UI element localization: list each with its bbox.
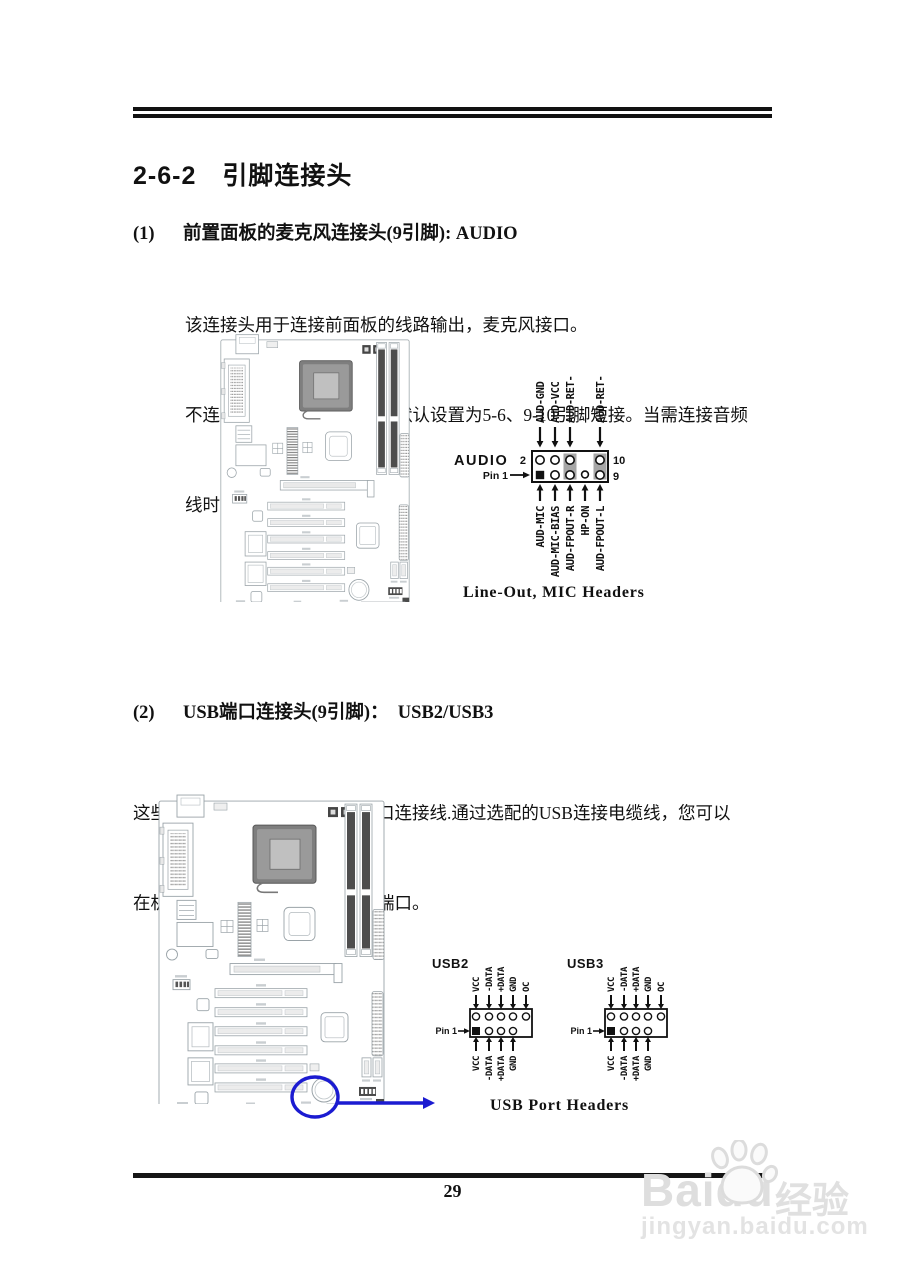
usb3-pin1-label: Pin 1 xyxy=(570,1026,592,1036)
motherboard-diagram-1 xyxy=(220,326,410,602)
usb2-pin1-square xyxy=(472,1027,480,1035)
manual-page: 2-6-2 引脚连接头 (1)前置面板的麦克风连接头(9引脚): AUDIO 该… xyxy=(0,0,905,1280)
header-rule-top xyxy=(133,107,772,111)
usb3-bottom-arrows xyxy=(611,1042,648,1051)
pin-number-2: 2 xyxy=(520,455,526,467)
audio-bottom-pin-label: AUD-MIC-BIAS xyxy=(550,506,562,577)
audio-top-arrowheads xyxy=(537,441,604,448)
pin-number-10: 10 xyxy=(613,455,625,467)
section1-number: (1) xyxy=(133,224,183,245)
usb2-top-arrows xyxy=(476,995,526,1004)
section2-number: (2) xyxy=(133,703,183,724)
usb3-top-pin-label: OC xyxy=(657,982,667,992)
section1-title: 前置面板的麦克风连接头(9引脚): AUDIO xyxy=(183,224,518,244)
audio-header-diagram: AUD-GND AUD-VCC AUD-RET-R AUD-RET-L AUDI… xyxy=(440,375,690,615)
usb3-pin1-square xyxy=(607,1027,615,1035)
audio-bottom-arrows xyxy=(540,491,600,502)
usb3-bottom-pin-label: +DATA xyxy=(632,1055,642,1081)
usb-highlight-annotation xyxy=(288,1072,438,1122)
usb3-bottom-pin-label: -DATA xyxy=(620,1055,630,1081)
section1-heading: (1)前置面板的麦克风连接头(9引脚): AUDIO xyxy=(133,219,518,245)
pin-number-9: 9 xyxy=(613,471,619,483)
audio-top-pin-label: AUD-VCC xyxy=(550,381,562,423)
usb2-top-pin-label: GND xyxy=(509,976,519,992)
usb2-bottom-pin-label: -DATA xyxy=(485,1055,495,1081)
usb2-pin1-label: Pin 1 xyxy=(435,1026,457,1036)
audio-bottom-pin-label: AUD-FPOUT-R xyxy=(565,505,577,571)
usb2-bottom-pin-label: GND xyxy=(509,1055,519,1071)
audio-top-arrows xyxy=(540,427,600,441)
usb2-top-pin-label: -DATA xyxy=(485,966,495,992)
usb2-name: USB2 xyxy=(432,956,469,971)
usb2-top-pin-label: +DATA xyxy=(497,966,507,992)
page-title: 2-6-2 引脚连接头 xyxy=(133,156,352,192)
highlight-arrowhead xyxy=(423,1097,435,1109)
baidu-paw-icon xyxy=(706,1140,778,1210)
audio-bottom-arrowheads xyxy=(537,484,604,491)
usb3-top-pin-label: +DATA xyxy=(632,966,642,992)
section2-heading: (2)USB端口连接头(9引脚)： USB2/USB3 xyxy=(133,698,493,724)
usb3-top-pin-label: -DATA xyxy=(620,966,630,992)
usb-caption: USB Port Headers xyxy=(490,1097,629,1114)
audio-caption: Line-Out, MIC Headers xyxy=(463,584,645,601)
audio-header-name: AUDIO xyxy=(454,453,508,469)
usb2-bottom-pin-label: +DATA xyxy=(497,1055,507,1081)
highlight-circle xyxy=(292,1077,338,1117)
usb3-bottom-pin-label: GND xyxy=(644,1055,654,1071)
pin1-arrowhead xyxy=(523,472,530,478)
audio-top-pin-label: AUD-GND xyxy=(535,381,547,423)
usb2-top-pin-label: OC xyxy=(522,982,532,992)
usb2-bottom-pin-label: VCC xyxy=(472,1056,482,1071)
usb2-bottom-arrows xyxy=(476,1042,513,1051)
audio-bottom-pin-label: AUD-MIC xyxy=(535,506,547,548)
usb3-bottom-pin-label: VCC xyxy=(607,1056,617,1071)
header-rule-bottom xyxy=(133,114,772,118)
watermark-url: jingyan.baidu.com xyxy=(641,1213,869,1241)
audio-top-pin-label: AUD-RET-L xyxy=(595,375,607,423)
usb3-pin1-arrowhead xyxy=(599,1028,605,1034)
usb3-top-arrows xyxy=(611,995,661,1004)
motherboard-diagram-2 xyxy=(158,785,385,1104)
audio-pin1-square xyxy=(536,471,544,479)
audio-bottom-pin-label: AUD-FPOUT-L xyxy=(595,506,607,571)
section2-title: USB端口连接头(9引脚)： USB2/USB3 xyxy=(183,703,493,723)
usb2-top-pin-label: VCC xyxy=(472,977,482,992)
audio-top-pin-label: AUD-RET-R xyxy=(565,375,577,423)
usb-header-diagram: USB2 VCC -DATA +DATA GND OC Pin 1 VCC -D… xyxy=(425,945,685,1120)
usb3-top-pin-label: VCC xyxy=(607,977,617,992)
usb3-name: USB3 xyxy=(567,956,604,971)
audio-bottom-pin-label: HP-ON xyxy=(580,506,592,536)
pin1-label: Pin 1 xyxy=(483,470,508,482)
usb3-top-pin-label: GND xyxy=(644,976,654,992)
